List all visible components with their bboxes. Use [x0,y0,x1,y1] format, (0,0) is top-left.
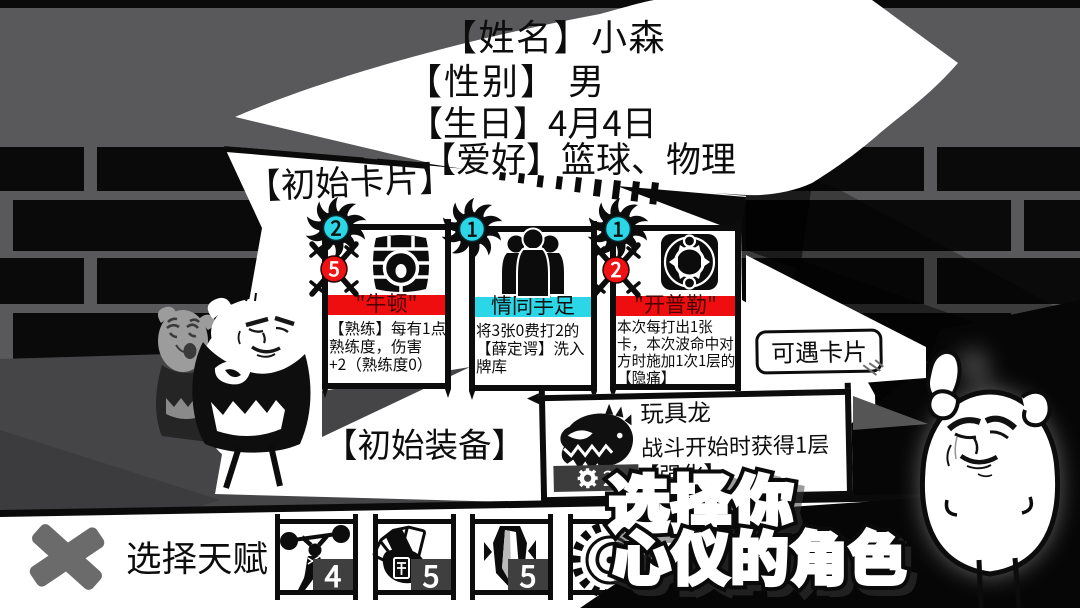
svg-text:1: 1 [466,214,477,243]
svg-text:"开普勒": "开普勒" [634,289,717,319]
svg-text:选择天赋: 选择天赋 [126,531,268,582]
svg-text:5: 5 [328,253,339,282]
svg-text:牌库: 牌库 [476,355,507,377]
svg-text:【初始装备】: 【初始装备】 [324,418,525,467]
svg-text:"牛顿": "牛顿" [356,288,418,318]
svg-text:+2（熟练度0）: +2（熟练度0） [329,353,432,375]
svg-text:1: 1 [612,214,623,243]
svg-text:2: 2 [330,213,341,242]
svg-text:玩具龙: 玩具龙 [640,394,711,429]
svg-text:心仪的角色: 心仪的角色 [612,512,907,597]
svg-text:5: 5 [520,552,537,596]
svg-text:【初始卡片】: 【初始卡片】 [245,150,454,209]
svg-text:5: 5 [423,552,440,596]
svg-text:可遇卡片: 可遇卡片 [771,332,868,369]
svg-text:2: 2 [610,254,621,283]
svg-text:【爱好】篮球、物理: 【爱好】篮球、物理 [421,132,736,183]
svg-text:4: 4 [325,552,342,596]
